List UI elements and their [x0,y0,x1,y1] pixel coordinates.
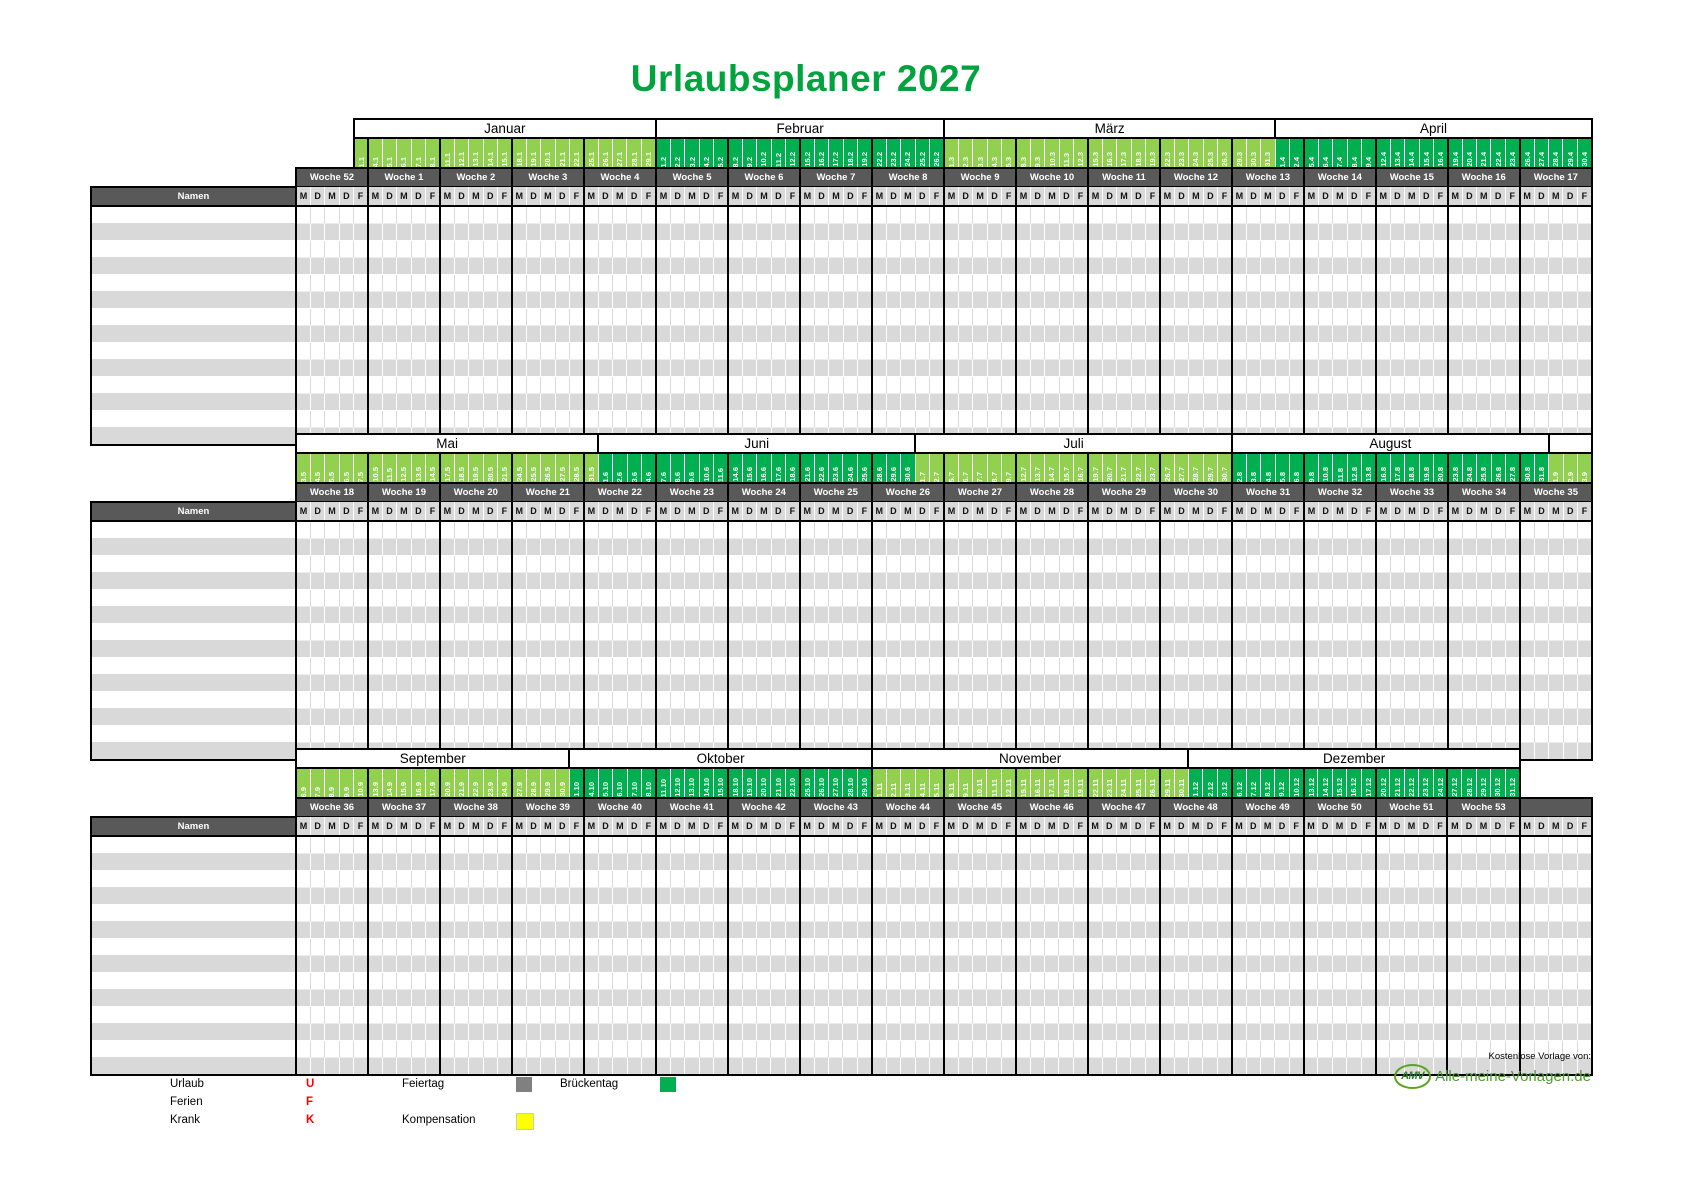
calendar-cell[interactable] [397,206,411,224]
calendar-cell[interactable] [1505,1023,1520,1040]
calendar-cell[interactable] [1347,393,1361,410]
calendar-cell[interactable] [1059,555,1073,572]
calendar-cell[interactable] [670,572,684,589]
calendar-cell[interactable] [1462,521,1476,539]
calendar-cell[interactable] [426,257,440,274]
calendar-cell[interactable] [713,989,727,1006]
calendar-cell[interactable] [368,538,382,555]
calendar-cell[interactable] [1246,1040,1260,1057]
calendar-cell[interactable] [310,274,324,291]
calendar-cell[interactable] [1246,521,1260,539]
calendar-cell[interactable] [1117,376,1131,393]
calendar-cell[interactable] [872,410,886,427]
calendar-cell[interactable] [987,989,1001,1006]
calendar-cell[interactable] [1462,555,1476,572]
calendar-cell[interactable] [1520,325,1534,342]
calendar-cell[interactable] [1505,325,1519,342]
calendar-cell[interactable] [1290,521,1304,539]
calendar-cell[interactable] [886,206,900,224]
calendar-cell[interactable] [1246,870,1260,887]
calendar-cell[interactable] [843,1023,857,1040]
calendar-cell[interactable] [1059,1023,1073,1040]
calendar-cell[interactable] [843,521,857,539]
calendar-cell[interactable] [1203,572,1217,589]
calendar-cell[interactable] [814,342,828,359]
calendar-cell[interactable] [1131,240,1145,257]
calendar-cell[interactable] [1059,1057,1073,1075]
calendar-cell[interactable] [1232,972,1246,989]
calendar-cell[interactable] [1261,521,1275,539]
calendar-cell[interactable] [526,572,540,589]
calendar-cell[interactable] [382,1040,396,1057]
calendar-cell[interactable] [339,955,353,972]
calendar-cell[interactable] [670,606,684,623]
calendar-cell[interactable] [829,325,843,342]
calendar-cell[interactable] [598,538,612,555]
calendar-cell[interactable] [1116,1006,1130,1023]
calendar-cell[interactable] [1347,972,1361,989]
calendar-cell[interactable] [843,904,857,921]
calendar-cell[interactable] [397,521,411,539]
calendar-cell[interactable] [785,606,799,623]
calendar-cell[interactable] [1045,989,1059,1006]
calendar-cell[interactable] [512,836,526,854]
name-cell[interactable] [91,657,296,674]
calendar-cell[interactable] [1318,521,1332,539]
calendar-cell[interactable] [728,1006,742,1023]
calendar-cell[interactable] [886,1006,900,1023]
calendar-cell[interactable] [1304,555,1318,572]
calendar-cell[interactable] [1376,674,1390,691]
calendar-cell[interactable] [1577,376,1592,393]
calendar-cell[interactable] [1131,725,1145,742]
calendar-cell[interactable] [555,904,569,921]
calendar-cell[interactable] [469,989,483,1006]
calendar-cell[interactable] [901,1057,915,1075]
calendar-cell[interactable] [742,691,756,708]
calendar-cell[interactable] [1146,410,1160,427]
calendar-cell[interactable] [901,921,915,938]
calendar-cell[interactable] [843,589,857,606]
calendar-cell[interactable] [454,538,468,555]
calendar-cell[interactable] [656,606,670,623]
calendar-cell[interactable] [685,359,699,376]
calendar-cell[interactable] [526,376,540,393]
calendar-cell[interactable] [526,1023,540,1040]
calendar-cell[interactable] [1347,572,1361,589]
calendar-cell[interactable] [1232,1057,1246,1075]
calendar-cell[interactable] [584,972,598,989]
calendar-cell[interactable] [1232,989,1246,1006]
calendar-cell[interactable] [1405,521,1419,539]
calendar-cell[interactable] [483,223,497,240]
calendar-cell[interactable] [1045,342,1059,359]
calendar-cell[interactable] [814,1023,828,1040]
calendar-cell[interactable] [1174,393,1188,410]
calendar-cell[interactable] [1390,904,1404,921]
calendar-cell[interactable] [627,623,641,640]
calendar-cell[interactable] [742,657,756,674]
calendar-cell[interactable] [1246,938,1260,955]
calendar-cell[interactable] [656,572,670,589]
calendar-cell[interactable] [656,989,670,1006]
calendar-cell[interactable] [1045,836,1059,854]
calendar-cell[interactable] [1563,223,1577,240]
calendar-cell[interactable] [973,623,987,640]
calendar-cell[interactable] [1577,410,1592,427]
calendar-cell[interactable] [742,325,756,342]
calendar-cell[interactable] [742,223,756,240]
calendar-cell[interactable] [1203,410,1217,427]
calendar-cell[interactable] [757,623,771,640]
calendar-cell[interactable] [728,972,742,989]
calendar-cell[interactable] [469,393,483,410]
calendar-cell[interactable] [1433,410,1447,427]
calendar-cell[interactable] [1160,359,1174,376]
calendar-cell[interactable] [929,325,944,342]
calendar-cell[interactable] [354,870,368,887]
calendar-cell[interactable] [901,836,915,854]
calendar-cell[interactable] [1217,955,1231,972]
calendar-cell[interactable] [1059,376,1073,393]
calendar-cell[interactable] [1217,725,1232,742]
calendar-cell[interactable] [901,623,916,640]
calendar-cell[interactable] [973,376,987,393]
calendar-cell[interactable] [354,257,368,274]
calendar-cell[interactable] [757,1023,771,1040]
calendar-cell[interactable] [929,1006,943,1023]
calendar-cell[interactable] [858,308,872,325]
calendar-cell[interactable] [1376,223,1390,240]
calendar-cell[interactable] [469,308,483,325]
calendar-cell[interactable] [1318,359,1332,376]
calendar-cell[interactable] [1506,674,1520,691]
calendar-cell[interactable] [1362,640,1376,657]
calendar-cell[interactable] [1246,206,1260,224]
calendar-cell[interactable] [1246,376,1260,393]
calendar-cell[interactable] [1304,342,1318,359]
calendar-cell[interactable] [1160,410,1174,427]
calendar-cell[interactable] [713,691,727,708]
calendar-cell[interactable] [1419,691,1433,708]
calendar-cell[interactable] [785,955,799,972]
calendar-cell[interactable] [411,325,425,342]
calendar-cell[interactable] [382,589,396,606]
calendar-cell[interactable] [1102,325,1116,342]
calendar-cell[interactable] [1145,955,1159,972]
calendar-cell[interactable] [901,240,915,257]
calendar-cell[interactable] [973,1006,987,1023]
calendar-cell[interactable] [1203,342,1217,359]
calendar-cell[interactable] [1160,836,1174,854]
calendar-cell[interactable] [1117,223,1131,240]
calendar-cell[interactable] [1275,674,1289,691]
calendar-cell[interactable] [296,691,310,708]
calendar-cell[interactable] [1217,640,1232,657]
calendar-cell[interactable] [1002,206,1016,224]
calendar-cell[interactable] [757,938,771,955]
calendar-cell[interactable] [1318,1006,1332,1023]
calendar-cell[interactable] [440,555,454,572]
name-cell[interactable] [91,955,296,972]
calendar-cell[interactable] [497,206,511,224]
calendar-cell[interactable] [872,870,886,887]
calendar-cell[interactable] [814,376,828,393]
calendar-cell[interactable] [973,640,987,657]
calendar-cell[interactable] [829,308,843,325]
calendar-cell[interactable] [497,708,511,725]
calendar-cell[interactable] [1275,955,1289,972]
calendar-cell[interactable] [1477,308,1491,325]
calendar-cell[interactable] [1333,725,1347,742]
calendar-cell[interactable] [973,223,987,240]
calendar-cell[interactable] [1059,725,1073,742]
calendar-cell[interactable] [800,972,814,989]
calendar-cell[interactable] [296,240,310,257]
calendar-cell[interactable] [786,393,800,410]
calendar-cell[interactable] [742,538,756,555]
calendar-cell[interactable] [526,836,540,854]
calendar-cell[interactable] [944,325,958,342]
calendar-cell[interactable] [1002,274,1016,291]
calendar-cell[interactable] [1390,589,1404,606]
calendar-cell[interactable] [354,674,368,691]
calendar-cell[interactable] [742,606,756,623]
calendar-cell[interactable] [1333,623,1347,640]
calendar-cell[interactable] [440,393,454,410]
calendar-cell[interactable] [1088,691,1102,708]
calendar-cell[interactable] [1476,921,1490,938]
calendar-cell[interactable] [1059,274,1073,291]
calendar-cell[interactable] [555,989,569,1006]
calendar-cell[interactable] [368,623,382,640]
calendar-cell[interactable] [1174,674,1188,691]
calendar-cell[interactable] [368,904,382,921]
calendar-cell[interactable] [296,725,310,742]
calendar-cell[interactable] [1289,359,1303,376]
calendar-cell[interactable] [699,589,713,606]
calendar-cell[interactable] [1563,393,1577,410]
calendar-cell[interactable] [497,291,511,308]
calendar-cell[interactable] [1477,240,1491,257]
calendar-cell[interactable] [1002,725,1016,742]
calendar-cell[interactable] [1016,623,1030,640]
calendar-cell[interactable] [454,955,468,972]
calendar-cell[interactable] [541,359,555,376]
calendar-cell[interactable] [1390,921,1404,938]
calendar-cell[interactable] [1088,589,1102,606]
calendar-cell[interactable] [1491,657,1505,674]
calendar-cell[interactable] [1520,521,1534,539]
calendar-cell[interactable] [1059,921,1073,938]
calendar-cell[interactable] [1578,538,1592,555]
calendar-cell[interactable] [742,521,756,539]
calendar-cell[interactable] [555,955,569,972]
calendar-cell[interactable] [1434,538,1448,555]
calendar-cell[interactable] [1002,572,1016,589]
calendar-cell[interactable] [958,640,972,657]
calendar-cell[interactable] [1563,955,1577,972]
calendar-cell[interactable] [1477,274,1491,291]
calendar-cell[interactable] [426,410,440,427]
calendar-cell[interactable] [800,725,814,742]
calendar-cell[interactable] [742,206,756,224]
calendar-cell[interactable] [901,955,915,972]
calendar-cell[interactable] [584,589,599,606]
calendar-cell[interactable] [454,291,468,308]
calendar-cell[interactable] [426,308,440,325]
calendar-cell[interactable] [742,1023,756,1040]
calendar-cell[interactable] [930,708,944,725]
calendar-cell[interactable] [1218,325,1232,342]
calendar-cell[interactable] [1447,836,1461,854]
calendar-cell[interactable] [1361,836,1375,854]
calendar-cell[interactable] [469,657,483,674]
calendar-cell[interactable] [397,640,411,657]
calendar-cell[interactable] [1405,325,1419,342]
calendar-cell[interactable] [641,223,656,240]
calendar-cell[interactable] [872,623,886,640]
calendar-cell[interactable] [1477,206,1491,224]
name-cell[interactable] [91,674,296,691]
calendar-cell[interactable] [1362,606,1376,623]
calendar-cell[interactable] [512,623,526,640]
calendar-cell[interactable] [728,359,742,376]
calendar-cell[interactable] [1016,606,1030,623]
calendar-cell[interactable] [426,853,440,870]
calendar-cell[interactable] [944,1023,958,1040]
calendar-cell[interactable] [440,291,454,308]
calendar-cell[interactable] [555,657,569,674]
calendar-cell[interactable] [1534,410,1548,427]
calendar-cell[interactable] [1160,223,1174,240]
name-cell[interactable] [91,572,296,589]
calendar-cell[interactable] [857,521,871,539]
calendar-cell[interactable] [1045,291,1059,308]
calendar-cell[interactable] [642,555,656,572]
calendar-cell[interactable] [1117,325,1131,342]
calendar-cell[interactable] [1491,623,1505,640]
calendar-cell[interactable] [699,393,713,410]
name-cell[interactable] [91,291,296,308]
calendar-cell[interactable] [1016,521,1030,539]
calendar-cell[interactable] [901,589,916,606]
calendar-cell[interactable] [469,538,483,555]
calendar-cell[interactable] [1549,904,1563,921]
calendar-cell[interactable] [757,359,771,376]
calendar-cell[interactable] [1505,938,1520,955]
calendar-cell[interactable] [1549,853,1563,870]
calendar-cell[interactable] [1203,1006,1217,1023]
calendar-cell[interactable] [512,359,526,376]
calendar-cell[interactable] [1145,657,1159,674]
calendar-cell[interactable] [1045,274,1059,291]
calendar-cell[interactable] [541,938,555,955]
calendar-cell[interactable] [1160,376,1174,393]
calendar-cell[interactable] [785,538,799,555]
calendar-cell[interactable] [1333,359,1347,376]
calendar-cell[interactable] [1333,691,1347,708]
calendar-cell[interactable] [1045,921,1059,938]
calendar-cell[interactable] [1146,257,1160,274]
calendar-cell[interactable] [1390,640,1404,657]
calendar-cell[interactable] [1117,521,1131,539]
calendar-cell[interactable] [929,972,943,989]
calendar-cell[interactable] [1232,955,1246,972]
calendar-cell[interactable] [886,1023,900,1040]
calendar-cell[interactable] [915,393,929,410]
calendar-cell[interactable] [541,989,555,1006]
calendar-cell[interactable] [1304,972,1318,989]
calendar-cell[interactable] [915,972,929,989]
calendar-cell[interactable] [1174,342,1188,359]
calendar-cell[interactable] [713,555,727,572]
calendar-cell[interactable] [742,887,756,904]
calendar-cell[interactable] [440,989,454,1006]
calendar-cell[interactable] [541,972,555,989]
calendar-cell[interactable] [310,538,324,555]
calendar-cell[interactable] [1448,342,1462,359]
calendar-cell[interactable] [814,606,828,623]
calendar-cell[interactable] [368,887,382,904]
calendar-cell[interactable] [1188,1040,1202,1057]
calendar-cell[interactable] [526,359,540,376]
calendar-cell[interactable] [310,836,324,854]
calendar-cell[interactable] [613,1057,627,1075]
calendar-cell[interactable] [584,870,598,887]
calendar-cell[interactable] [1088,555,1102,572]
calendar-cell[interactable] [613,657,627,674]
calendar-cell[interactable] [1232,938,1246,955]
calendar-cell[interactable] [1059,1040,1073,1057]
calendar-cell[interactable] [613,555,627,572]
calendar-cell[interactable] [685,904,699,921]
calendar-cell[interactable] [1332,887,1346,904]
calendar-cell[interactable] [771,393,785,410]
calendar-cell[interactable] [1419,887,1433,904]
calendar-cell[interactable] [699,274,713,291]
calendar-cell[interactable] [641,938,655,955]
calendar-cell[interactable] [382,708,396,725]
calendar-cell[interactable] [872,555,886,572]
calendar-cell[interactable] [296,708,310,725]
calendar-cell[interactable] [426,674,440,691]
calendar-cell[interactable] [757,223,771,240]
calendar-cell[interactable] [901,870,915,887]
calendar-cell[interactable] [1246,640,1260,657]
calendar-cell[interactable] [1073,1006,1087,1023]
calendar-cell[interactable] [512,904,526,921]
calendar-cell[interactable] [512,538,526,555]
calendar-cell[interactable] [1074,393,1088,410]
calendar-cell[interactable] [670,674,684,691]
calendar-cell[interactable] [829,1006,843,1023]
calendar-cell[interactable] [1232,359,1246,376]
calendar-cell[interactable] [555,572,569,589]
calendar-cell[interactable] [1390,342,1404,359]
calendar-cell[interactable] [1275,1057,1289,1075]
calendar-cell[interactable] [325,572,339,589]
calendar-cell[interactable] [699,555,713,572]
calendar-cell[interactable] [1045,1006,1059,1023]
calendar-cell[interactable] [1347,657,1361,674]
calendar-cell[interactable] [1160,308,1174,325]
calendar-cell[interactable] [1534,972,1548,989]
calendar-cell[interactable] [569,921,583,938]
calendar-cell[interactable] [1534,206,1548,224]
calendar-cell[interactable] [469,325,483,342]
calendar-cell[interactable] [627,640,641,657]
